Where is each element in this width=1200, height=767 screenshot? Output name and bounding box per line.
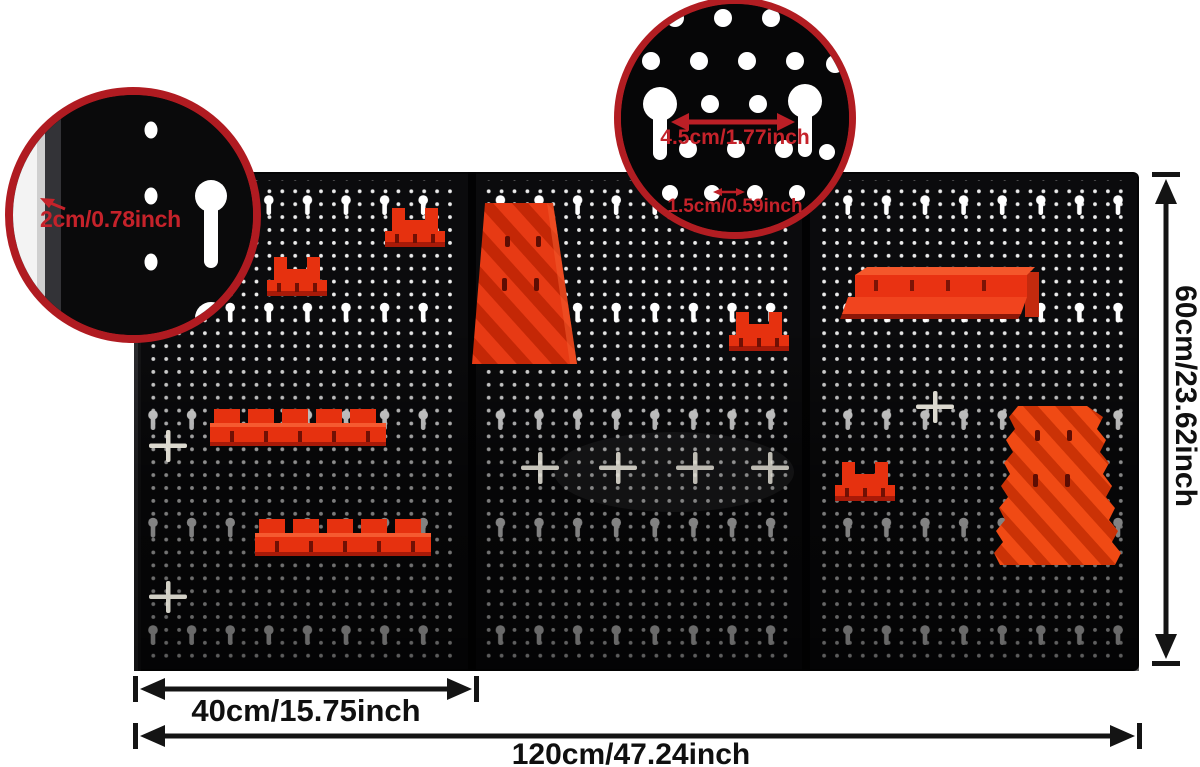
total-width-label: 120cm/47.24inch xyxy=(470,738,792,767)
edge-thickness-label: 2cm/0.78inch xyxy=(40,206,200,233)
shelf-rail xyxy=(840,267,1039,319)
dot-spacing-label: 1.5cm/0.59inch xyxy=(640,196,830,218)
pegboard-dimension-diagram: 2cm/0.78inch 4.5cm/1.77inch 1.5cm/0.59in… xyxy=(0,0,1200,767)
tool-rail xyxy=(210,409,386,446)
panel-width-label: 40cm/15.75inch xyxy=(170,693,442,729)
keyhole-spacing-label: 4.5cm/1.77inch xyxy=(640,126,830,150)
glare xyxy=(554,432,794,512)
pegboard xyxy=(134,172,1139,671)
height-label: 60cm/23.62inch xyxy=(1170,276,1200,516)
wall-background xyxy=(13,95,37,335)
tool-rail xyxy=(255,519,431,556)
